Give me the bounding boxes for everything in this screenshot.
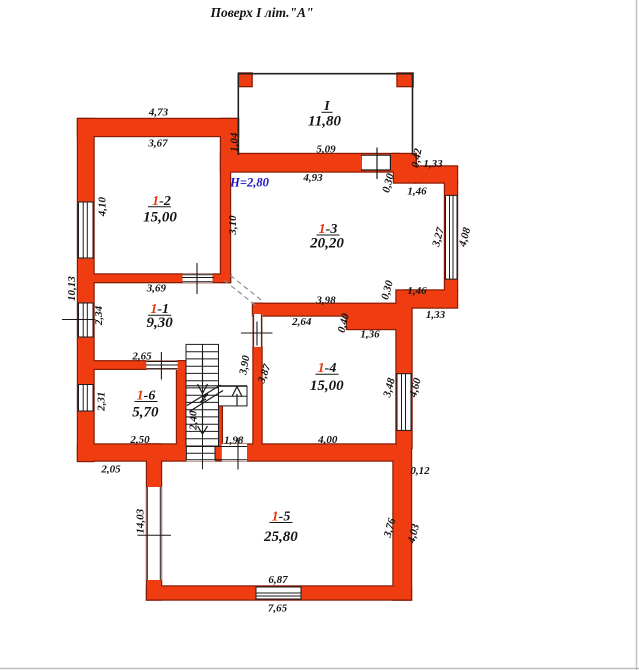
svg-text:1,46: 1,46 [407, 285, 427, 297]
svg-text:2,40: 2,40 [188, 410, 200, 431]
svg-text:10,13: 10,13 [66, 276, 78, 301]
svg-text:4,73: 4,73 [148, 107, 169, 119]
svg-text:1,98: 1,98 [224, 435, 244, 447]
svg-text:14,03: 14,03 [135, 508, 147, 533]
svg-text:0,12: 0,12 [410, 465, 430, 477]
svg-text:2,05: 2,05 [100, 464, 121, 476]
svg-text:Поверх І літ."А": Поверх І літ."А" [209, 5, 313, 20]
svg-text:1,46: 1,46 [407, 186, 427, 198]
svg-text:1,33: 1,33 [423, 158, 443, 170]
svg-text:1,36: 1,36 [360, 329, 380, 341]
svg-text:15,00: 15,00 [310, 378, 344, 394]
svg-text:20,20: 20,20 [309, 236, 344, 252]
svg-text:4,00: 4,00 [317, 434, 338, 446]
svg-text:2,64: 2,64 [291, 316, 312, 328]
svg-text:1-4: 1-4 [318, 361, 337, 376]
svg-text:2,50: 2,50 [129, 434, 150, 446]
svg-text:3,69: 3,69 [146, 283, 167, 295]
svg-text:5,70: 5,70 [132, 405, 159, 421]
svg-text:25,80: 25,80 [263, 529, 298, 545]
svg-text:11,80: 11,80 [308, 114, 341, 130]
svg-text:3,67: 3,67 [147, 138, 168, 150]
svg-text:2,65: 2,65 [131, 351, 152, 363]
svg-text:1,04: 1,04 [228, 132, 240, 152]
svg-text:4,10: 4,10 [97, 196, 109, 217]
svg-text:5,09: 5,09 [316, 144, 336, 156]
svg-text:6,87: 6,87 [268, 574, 288, 586]
svg-text:3,10: 3,10 [227, 215, 239, 236]
svg-text:H=2,80: H=2,80 [229, 176, 269, 190]
svg-text:9,30: 9,30 [146, 315, 173, 331]
svg-text:2,31: 2,31 [96, 392, 108, 412]
svg-text:7,65: 7,65 [268, 603, 288, 615]
svg-text:3,98: 3,98 [315, 295, 336, 307]
svg-text:I: I [323, 99, 330, 114]
svg-text:15,00: 15,00 [143, 210, 177, 226]
svg-text:4,93: 4,93 [302, 172, 323, 184]
svg-text:1,33: 1,33 [426, 309, 446, 321]
svg-text:2,34: 2,34 [93, 305, 105, 326]
